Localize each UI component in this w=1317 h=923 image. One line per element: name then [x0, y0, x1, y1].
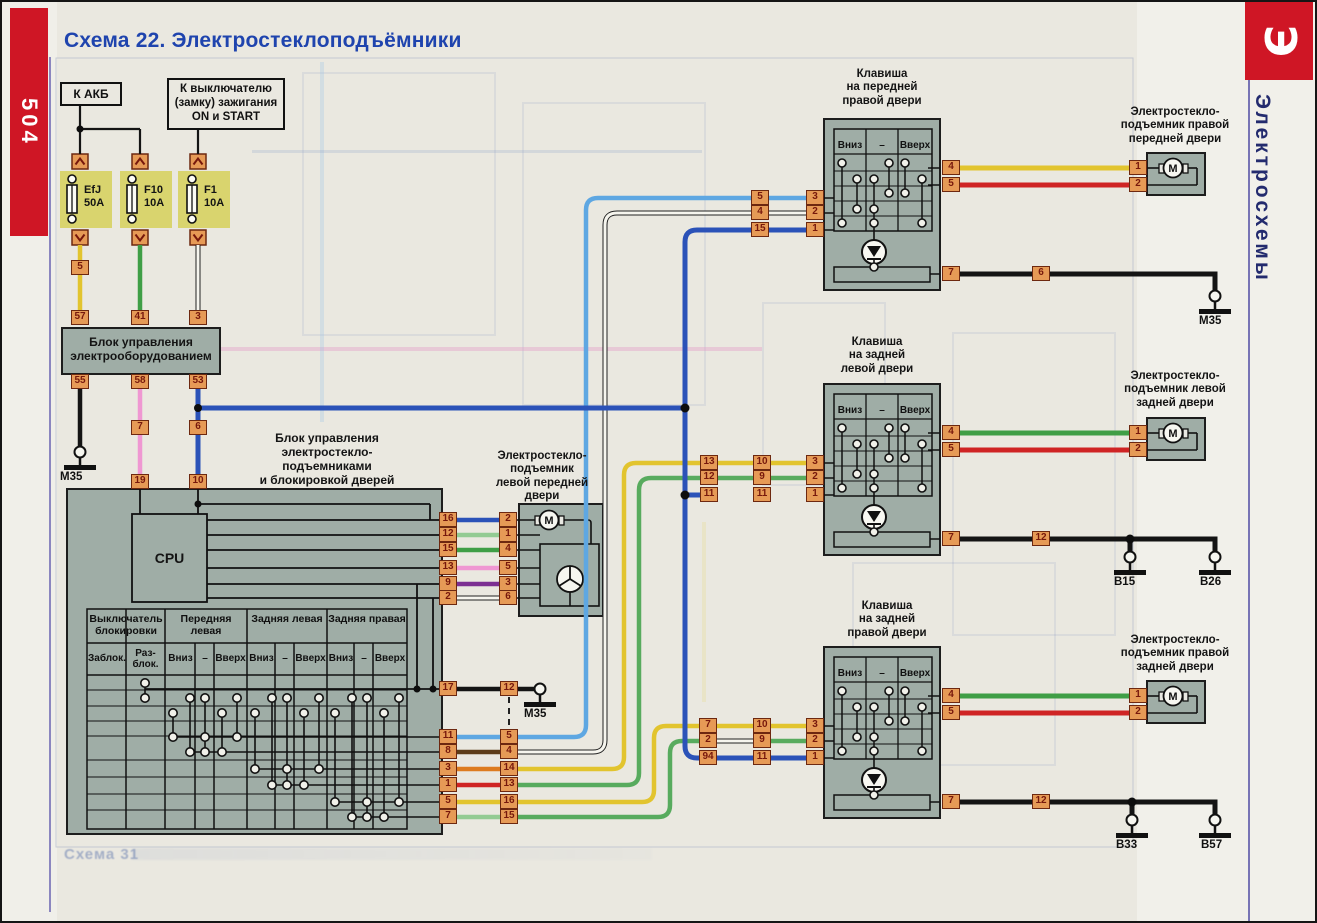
- fuse-2-label: F1010A: [144, 184, 174, 210]
- fuse-icon: [127, 175, 137, 223]
- junction-dot: [414, 686, 421, 693]
- pin: 5: [439, 794, 457, 809]
- section-letter-tab: Э: [1245, 2, 1313, 80]
- pin: 7: [942, 794, 960, 809]
- pin: 1: [806, 487, 824, 502]
- pin: 15: [751, 222, 769, 237]
- table-sub-down: Вниз: [248, 653, 275, 664]
- rr-lifter-label: Электростекло-подъемник правойзадней две…: [1110, 634, 1240, 674]
- table-sub-lock: Заблок.: [88, 653, 125, 664]
- pin: 7: [439, 809, 457, 824]
- bleedthrough-artifact: [320, 62, 324, 422]
- pin: 12: [700, 470, 718, 485]
- pin: 12: [1032, 794, 1050, 809]
- pin: 8: [439, 744, 457, 759]
- pin: 57: [71, 310, 89, 325]
- pin: 15: [500, 809, 518, 824]
- pin: 1: [806, 750, 824, 765]
- pin: 3: [499, 576, 517, 591]
- page-number-tab: 504: [10, 8, 48, 236]
- pin: 55: [71, 374, 89, 389]
- pin: 6: [1032, 266, 1050, 281]
- motor-brush-icon: [559, 516, 564, 525]
- pin: 11: [753, 487, 771, 502]
- pin: 4: [942, 688, 960, 703]
- rl-lifter-label: Электростекло-подъемник левойзадней двер…: [1110, 370, 1240, 410]
- pin: 2: [1129, 705, 1147, 720]
- junction-dot: [681, 491, 690, 500]
- pin: 1: [806, 222, 824, 237]
- lock-table-contacts: [141, 679, 403, 821]
- pin: 3: [806, 718, 824, 733]
- pin: 4: [499, 542, 517, 557]
- pin: 5: [942, 442, 960, 457]
- table-sub-up: Вверх: [215, 653, 246, 664]
- pin: 10: [189, 474, 207, 489]
- ground-label-b26: В26: [1200, 577, 1221, 589]
- window-regulator-icon: [557, 566, 583, 592]
- pin: 7: [131, 420, 149, 435]
- pin: 16: [439, 512, 457, 527]
- pin: 6: [189, 420, 207, 435]
- bleedthrough-artifact: [762, 302, 886, 486]
- pin: 9: [753, 470, 771, 485]
- pin: 9: [439, 576, 457, 591]
- junction-dot: [1126, 535, 1135, 544]
- pin: 1: [1129, 160, 1147, 175]
- table-sub-down: Вниз: [328, 653, 354, 664]
- pin: 2: [806, 205, 824, 220]
- pin: 11: [753, 750, 771, 765]
- lock-table-links: [145, 683, 439, 817]
- pin: 53: [189, 374, 207, 389]
- ground-label-m35: М35: [1199, 316, 1221, 328]
- junction-dot: [194, 404, 202, 412]
- scanned-manual-page: К АКБ К выключателю (замку) зажигания ON…: [0, 0, 1317, 923]
- pin: 16: [500, 794, 518, 809]
- bleedthrough-artifact: [522, 102, 706, 406]
- table-header-front-left: Передняя левая: [166, 614, 246, 637]
- pin: 41: [131, 310, 149, 325]
- bleedthrough-artifact: [702, 522, 706, 702]
- pin: 5: [942, 177, 960, 192]
- ignition-source-box: К выключателю (замку) зажигания ON и STA…: [167, 78, 285, 130]
- pin: 5: [499, 560, 517, 575]
- table-sub-dash: –: [196, 653, 214, 664]
- pin: 2: [699, 733, 717, 748]
- battery-source-box: К АКБ: [60, 82, 122, 106]
- fuse-3-label: F110A: [204, 184, 234, 210]
- pin: 11: [700, 487, 718, 502]
- pin: 2: [499, 512, 517, 527]
- pin: 1: [1129, 688, 1147, 703]
- ground-label-m35: М35: [524, 709, 546, 721]
- pin: 3: [439, 761, 457, 776]
- pin: 11: [439, 729, 457, 744]
- fl-regulator-box: [540, 544, 599, 606]
- rr-switch-label: Клавишана заднейправой двери: [825, 600, 949, 640]
- pin: 1: [439, 777, 457, 792]
- pin: 2: [1129, 442, 1147, 457]
- ground-label-b57: В57: [1201, 840, 1222, 852]
- pin: 2: [806, 470, 824, 485]
- lock-table-grid: [87, 609, 407, 829]
- main-block-label: Блок управленияэлектростекло- подъемника…: [232, 432, 422, 488]
- pin: 2: [439, 590, 457, 605]
- pin: 7: [699, 718, 717, 733]
- fuse-icon: [187, 175, 197, 223]
- bleedthrough-artifact: [852, 562, 1056, 766]
- battery-label: К АКБ: [73, 87, 108, 101]
- pin: 5: [71, 260, 89, 275]
- pin: 12: [500, 681, 518, 696]
- fr-switch-module: [824, 119, 940, 290]
- table-sub-up: Вверх: [374, 653, 406, 664]
- fuse-1-label: EfJ50A: [84, 184, 114, 210]
- right-rule: [1248, 80, 1250, 923]
- pin: 3: [806, 455, 824, 470]
- pin: 5: [751, 190, 769, 205]
- table-sub-dash: –: [355, 653, 373, 664]
- pin: 5: [942, 705, 960, 720]
- cpu-label: CPU: [132, 514, 207, 602]
- bleedthrough-artifact: [217, 347, 762, 351]
- junction-dot: [195, 501, 202, 508]
- ignition-label-3: ON и START: [175, 111, 278, 125]
- page-number: 504: [18, 98, 40, 147]
- fr-switch-label: Клавишана переднейправой двери: [820, 68, 944, 108]
- table-header-rear-left: Задняя левая: [248, 614, 326, 626]
- pin: 2: [806, 733, 824, 748]
- pin: 58: [131, 374, 149, 389]
- pin: 94: [699, 750, 717, 765]
- pin: 9: [753, 733, 771, 748]
- pin: 7: [942, 531, 960, 546]
- ignition-label-1: К выключателю: [175, 83, 278, 97]
- pin: 1: [1129, 425, 1147, 440]
- section-letter: Э: [1257, 25, 1301, 57]
- bleedthrough-artifact: [252, 150, 702, 153]
- wire-fuse-outputs: [80, 245, 198, 310]
- pin: 4: [500, 744, 518, 759]
- pin: 12: [1032, 531, 1050, 546]
- pin: 12: [439, 527, 457, 542]
- pin: 3: [189, 310, 207, 325]
- pin: 4: [751, 205, 769, 220]
- pin: 19: [131, 474, 149, 489]
- pin: 4: [942, 425, 960, 440]
- pin: 10: [753, 455, 771, 470]
- pin: 5: [500, 729, 518, 744]
- pin: 3: [806, 190, 824, 205]
- bleedthrough-artifact: [302, 72, 496, 336]
- table-header-rear-right: Задняя правая: [328, 614, 406, 626]
- bleedthrough-smudge: [132, 848, 652, 860]
- table-sub-down: Вниз: [166, 653, 195, 664]
- pin: 4: [942, 160, 960, 175]
- rl-switch-label: Клавишана заднейлевой двери: [815, 336, 939, 376]
- pin: 2: [1129, 177, 1147, 192]
- motor-brush-icon: [535, 516, 540, 525]
- bleedthrough-caption: Схема 31: [64, 847, 139, 862]
- pin: 17: [439, 681, 457, 696]
- table-sub-up: Вверх: [295, 653, 326, 664]
- junction-dot: [77, 126, 84, 133]
- ignition-label-2: (замку) зажигания: [175, 97, 278, 111]
- fr-lifter-label: Электростекло-подъемник правойпередней д…: [1110, 106, 1240, 146]
- fuse-icon: [67, 175, 77, 223]
- pin: 13: [439, 560, 457, 575]
- fl-lifter-internals: [517, 520, 591, 606]
- junction-dot: [1128, 798, 1137, 807]
- pin: 15: [439, 542, 457, 557]
- fl-lifter-label: Электростекло-подъемник левой переднейдв…: [480, 450, 604, 503]
- wire-pairs: [457, 520, 534, 817]
- page-title: Схема 22. Электростеклоподъёмники: [64, 30, 462, 51]
- ground-label-m35: М35: [60, 472, 82, 484]
- pin: 13: [700, 455, 718, 470]
- junction-dot: [430, 686, 437, 693]
- left-rule: [49, 57, 51, 912]
- pin: 13: [500, 777, 518, 792]
- pin: 6: [499, 590, 517, 605]
- table-sub-dash: –: [276, 653, 294, 664]
- pin: 14: [500, 761, 518, 776]
- ground-label-b15: В15: [1114, 577, 1135, 589]
- pin: 10: [753, 718, 771, 733]
- ecu-label: Блок управленияэлектрооборудованием: [64, 336, 218, 364]
- ground-label-b33: В33: [1116, 840, 1137, 852]
- pin: 7: [942, 266, 960, 281]
- motor-letter: M: [544, 515, 553, 527]
- pin: 1: [499, 527, 517, 542]
- section-label: Электросхемы: [1252, 94, 1273, 514]
- table-sub-unlock: Раз-блок.: [127, 648, 164, 670]
- table-header-lock: Выключатель блокировки: [88, 614, 164, 637]
- fl-lifter-panel: [519, 504, 603, 616]
- motor-icon: [540, 511, 559, 530]
